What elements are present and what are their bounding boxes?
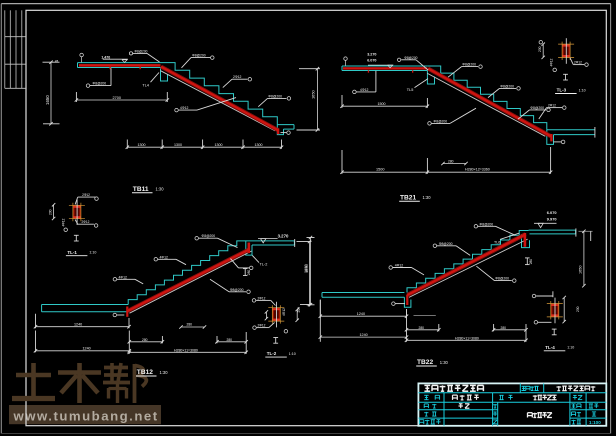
svg-text:Φ8@200: Φ8@200 [135,49,148,53]
svg-text:1:10: 1:10 [289,352,296,356]
svg-text:2Φ12: 2Φ12 [82,193,90,197]
svg-text:Φ8@200: Φ8@200 [495,277,509,281]
svg-text:TL-2: TL-2 [267,351,277,356]
svg-text:1240: 1240 [83,347,91,351]
svg-text:TL6: TL6 [494,241,500,245]
svg-text:6.070: 6.070 [547,210,557,215]
svg-text:200: 200 [48,209,52,215]
svg-text:Φ8@200: Φ8@200 [404,56,417,60]
svg-text:1240: 1240 [360,333,368,337]
svg-text:1:30: 1:30 [440,360,449,365]
svg-text:1650: 1650 [579,266,583,274]
svg-text:2Φ12: 2Φ12 [548,104,556,108]
svg-text:6.070: 6.070 [367,59,376,63]
svg-text:1:100: 1:100 [589,420,601,425]
svg-text:Φ8@200: Φ8@200 [434,119,448,123]
svg-text:TB12: TB12 [137,369,153,376]
svg-text:280: 280 [529,259,533,265]
svg-text:1:30: 1:30 [423,195,432,200]
svg-text:Φ8@200: Φ8@200 [500,84,514,88]
svg-text:280: 280 [419,326,425,330]
svg-text:1:10: 1:10 [89,251,96,255]
svg-text:TL4: TL4 [142,83,149,87]
svg-text:Φ8@200: Φ8@200 [202,234,216,238]
svg-text:4Φ12: 4Φ12 [360,88,368,92]
svg-text:200: 200 [576,306,580,312]
svg-text:1240: 1240 [357,312,365,316]
svg-text:4Φ12: 4Φ12 [62,218,66,226]
svg-text:H280×11=3080: H280×11=3080 [455,337,479,341]
svg-text:280: 280 [448,159,454,163]
svg-text:1:10: 1:10 [579,88,586,92]
svg-text:H280×11=3080: H280×11=3080 [174,348,198,352]
svg-text:Φ8@200: Φ8@200 [192,54,206,58]
svg-text:3.270: 3.270 [278,233,289,238]
svg-text:9.970: 9.970 [547,216,557,221]
svg-text:1650: 1650 [304,264,309,273]
svg-text:www.tumubang.net: www.tumubang.net [13,408,159,423]
svg-text:TB21: TB21 [400,194,416,201]
svg-text:3.270: 3.270 [367,52,376,56]
svg-text:2Φ12: 2Φ12 [82,220,90,224]
svg-text:TL-1: TL-1 [67,250,77,255]
svg-text:4Φ12: 4Φ12 [282,308,286,316]
svg-text:TL-4: TL-4 [545,345,555,350]
svg-text:1650: 1650 [311,90,316,99]
svg-text:2Φ12: 2Φ12 [258,296,266,300]
svg-text:1:10: 1:10 [567,346,574,350]
svg-text:Φ8@200: Φ8@200 [480,222,494,226]
svg-text:280: 280 [247,270,251,276]
svg-text:1300: 1300 [138,143,146,147]
svg-text:2Φ12: 2Φ12 [574,61,582,65]
svg-text:Φ8@200: Φ8@200 [462,63,476,67]
svg-text:1240: 1240 [74,323,82,327]
svg-text:TL-2: TL-2 [260,263,268,267]
svg-text:4Φ12: 4Φ12 [395,264,403,268]
svg-text:4Φ12: 4Φ12 [180,106,188,110]
svg-text:4Φ12: 4Φ12 [160,255,168,259]
svg-text:Φ8@200: Φ8@200 [268,94,282,98]
svg-text:TL-3: TL-3 [557,88,567,93]
svg-text:1:30: 1:30 [156,187,165,192]
svg-text:28: 28 [55,59,59,63]
svg-text:200: 200 [297,307,301,313]
svg-text:2Φ12: 2Φ12 [258,324,266,328]
svg-text:TB22: TB22 [417,359,433,366]
svg-text:4Φ12: 4Φ12 [119,275,127,279]
svg-text:200: 200 [538,46,542,52]
svg-text:TL5: TL5 [407,88,414,92]
svg-text:1:30: 1:30 [160,370,169,375]
svg-text:Φ8@200: Φ8@200 [230,288,244,292]
svg-text:280: 280 [187,323,193,327]
svg-text:TB11: TB11 [133,186,149,193]
svg-text:Φ8@200: Φ8@200 [530,106,544,110]
svg-text:1300: 1300 [255,143,263,147]
svg-text:280: 280 [501,326,507,330]
svg-text:4Φ12: 4Φ12 [550,58,554,66]
svg-text:1500: 1500 [378,102,386,106]
svg-text:2Φ12: 2Φ12 [233,75,241,79]
svg-text:280: 280 [227,338,233,342]
svg-text:2700: 2700 [113,96,121,100]
svg-text:1500: 1500 [376,168,384,172]
svg-text:1300: 1300 [174,143,182,147]
svg-text:1.470: 1.470 [101,55,110,59]
svg-text:H280×12=3360: H280×12=3360 [465,168,490,172]
svg-text:280: 280 [142,338,148,342]
svg-text:Φ8@200: Φ8@200 [439,242,453,246]
svg-text:Φ8@200: Φ8@200 [93,82,107,86]
svg-text:1650: 1650 [45,95,50,105]
svg-text:1300: 1300 [215,143,223,147]
